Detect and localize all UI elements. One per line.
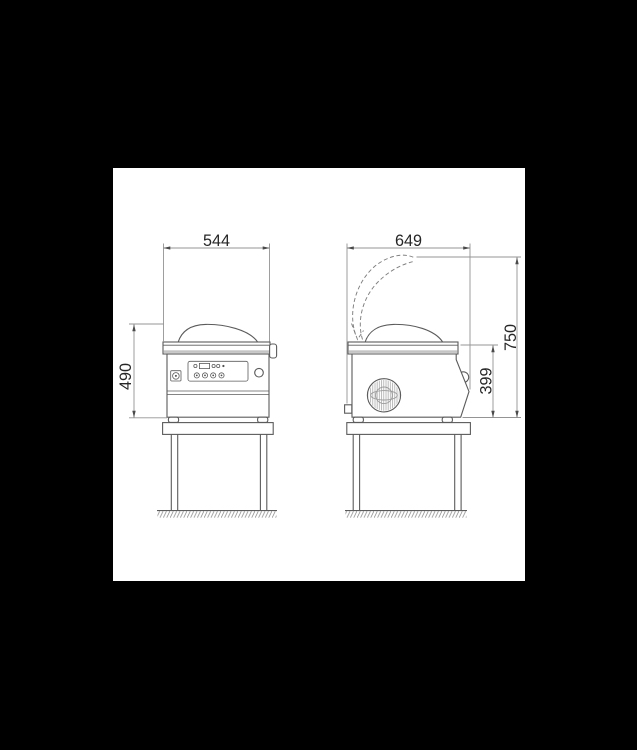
- side-lid-dome: [365, 324, 443, 342]
- side-stand: [347, 423, 471, 511]
- dimension-front-width: 544: [163, 232, 269, 342]
- technical-drawing: 544 490 649 750: [113, 168, 525, 581]
- front-stand: [163, 423, 274, 511]
- front-view: [157, 324, 277, 517]
- drawing-canvas: 544 490 649 750: [113, 168, 525, 581]
- side-foot-right: [442, 417, 452, 422]
- front-lid-latch: [270, 344, 277, 358]
- side-view: [345, 255, 471, 518]
- front-foot-right: [258, 417, 268, 422]
- dimension-front-height: 490: [117, 324, 167, 418]
- cord-inlet: [345, 405, 352, 413]
- side-depth-label: 649: [395, 232, 422, 250]
- side-foot-left: [353, 417, 363, 422]
- front-body: [167, 354, 269, 417]
- open-lid-outline: [352, 255, 415, 339]
- front-width-label: 544: [203, 232, 230, 250]
- front-foot-left: [168, 417, 178, 422]
- side-body-height-label: 399: [478, 367, 496, 394]
- screenshot-root: { "scene": { "type": "technical dimensio…: [0, 0, 637, 750]
- fan-grille: [367, 379, 400, 412]
- front-ground: [157, 511, 277, 518]
- front-lid-dome: [178, 324, 258, 342]
- side-height-open-label: 750: [502, 324, 520, 351]
- side-body: [352, 354, 469, 417]
- side-ground: [345, 511, 467, 518]
- front-height-label: 490: [117, 363, 135, 390]
